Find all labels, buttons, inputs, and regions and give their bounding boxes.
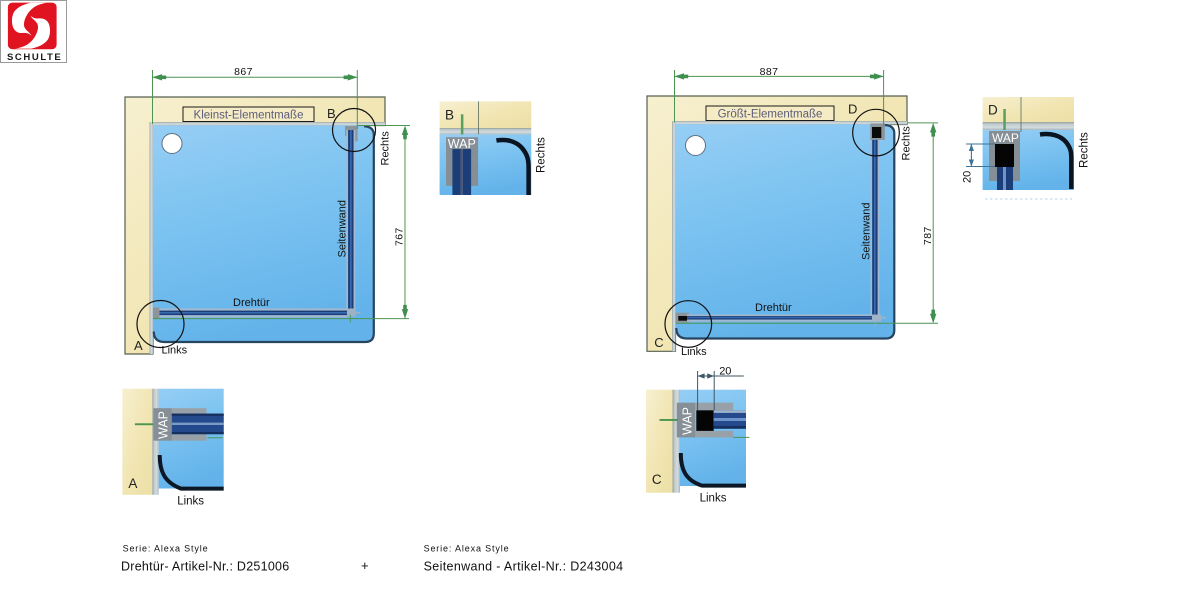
svg-text:WAP: WAP [681, 407, 695, 435]
svg-text:WAP: WAP [157, 411, 171, 439]
svg-text:Links: Links [681, 346, 707, 358]
svg-text:Kleinst-Elementmaße: Kleinst-Elementmaße [194, 109, 304, 121]
svg-text:787: 787 [922, 226, 934, 245]
svg-text:Rechts: Rechts [1079, 132, 1091, 168]
svg-text:Rechts: Rechts [901, 126, 913, 161]
svg-text:Seitenwand - Artikel-Nr.: D243: Seitenwand - Artikel-Nr.: D243004 [424, 560, 624, 574]
svg-text:Größt-Elementmaße: Größt-Elementmaße [718, 108, 823, 120]
svg-text:D: D [988, 103, 998, 118]
svg-text:Links: Links [162, 345, 188, 357]
svg-text:867: 867 [234, 66, 253, 78]
svg-text:20: 20 [962, 171, 974, 183]
svg-text:Seitenwand: Seitenwand [861, 203, 873, 261]
svg-text:SCHULTE: SCHULTE [7, 52, 62, 63]
svg-text:887: 887 [760, 66, 779, 78]
svg-text:Seitenwand: Seitenwand [337, 200, 349, 258]
svg-text:767: 767 [393, 227, 405, 246]
svg-text:Drehtür: Drehtür [233, 297, 270, 309]
svg-text:Rechts: Rechts [536, 137, 548, 173]
svg-text:+: + [361, 558, 369, 573]
svg-text:Serie: Alexa Style: Serie: Alexa Style [123, 544, 209, 554]
svg-text:Drehtür: Drehtür [755, 302, 792, 314]
svg-text:A: A [128, 476, 137, 491]
svg-text:C: C [652, 472, 662, 487]
svg-text:A: A [134, 338, 143, 353]
svg-text:B: B [445, 108, 454, 123]
svg-text:WAP: WAP [992, 131, 1019, 145]
svg-text:Serie: Alexa Style: Serie: Alexa Style [424, 544, 510, 554]
svg-text:Drehtür- Artikel-Nr.: D251006: Drehtür- Artikel-Nr.: D251006 [121, 560, 289, 574]
svg-text:C: C [654, 335, 663, 350]
svg-text:Links: Links [177, 496, 204, 508]
svg-text:Links: Links [700, 493, 727, 505]
svg-text:20: 20 [719, 366, 731, 378]
svg-text:B: B [327, 106, 336, 121]
svg-text:Rechts: Rechts [380, 131, 392, 166]
svg-text:D: D [848, 102, 857, 117]
svg-text:WAP: WAP [448, 137, 476, 151]
